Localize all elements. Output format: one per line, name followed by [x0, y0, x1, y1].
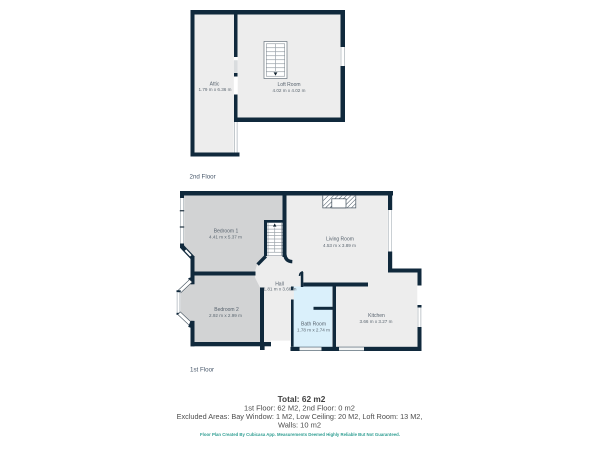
svg-text:4.53 m x 3.89 m: 4.53 m x 3.89 m [323, 243, 356, 248]
svg-text:Walls: 10 m2: Walls: 10 m2 [278, 421, 321, 430]
svg-text:Living Room: Living Room [326, 237, 354, 243]
svg-text:1.78 m x 2.74 m: 1.78 m x 2.74 m [297, 327, 330, 332]
svg-text:1st Floor: 1st Floor [190, 367, 214, 374]
svg-text:2nd Floor: 2nd Floor [190, 174, 216, 181]
svg-text:4.02 m x 4.02 m: 4.02 m x 4.02 m [273, 88, 306, 93]
svg-text:2.92 m x 2.99 m: 2.92 m x 2.99 m [209, 313, 242, 318]
svg-text:1st Floor: 62 M2, 2nd Floor: 0: 1st Floor: 62 M2, 2nd Floor: 0 m2 [244, 403, 355, 412]
svg-text:1.81 m x 3.66 m: 1.81 m x 3.66 m [264, 287, 297, 292]
svg-text:3.66 m x 3.27 m: 3.66 m x 3.27 m [360, 319, 393, 324]
svg-text:4.41 m x 5.37 m: 4.41 m x 5.37 m [209, 234, 242, 239]
svg-text:Floor Plan Created By Cubicasa: Floor Plan Created By Cubicasa App. Meas… [200, 432, 400, 437]
svg-text:1.79 m x 6.36 m: 1.79 m x 6.36 m [199, 87, 232, 92]
